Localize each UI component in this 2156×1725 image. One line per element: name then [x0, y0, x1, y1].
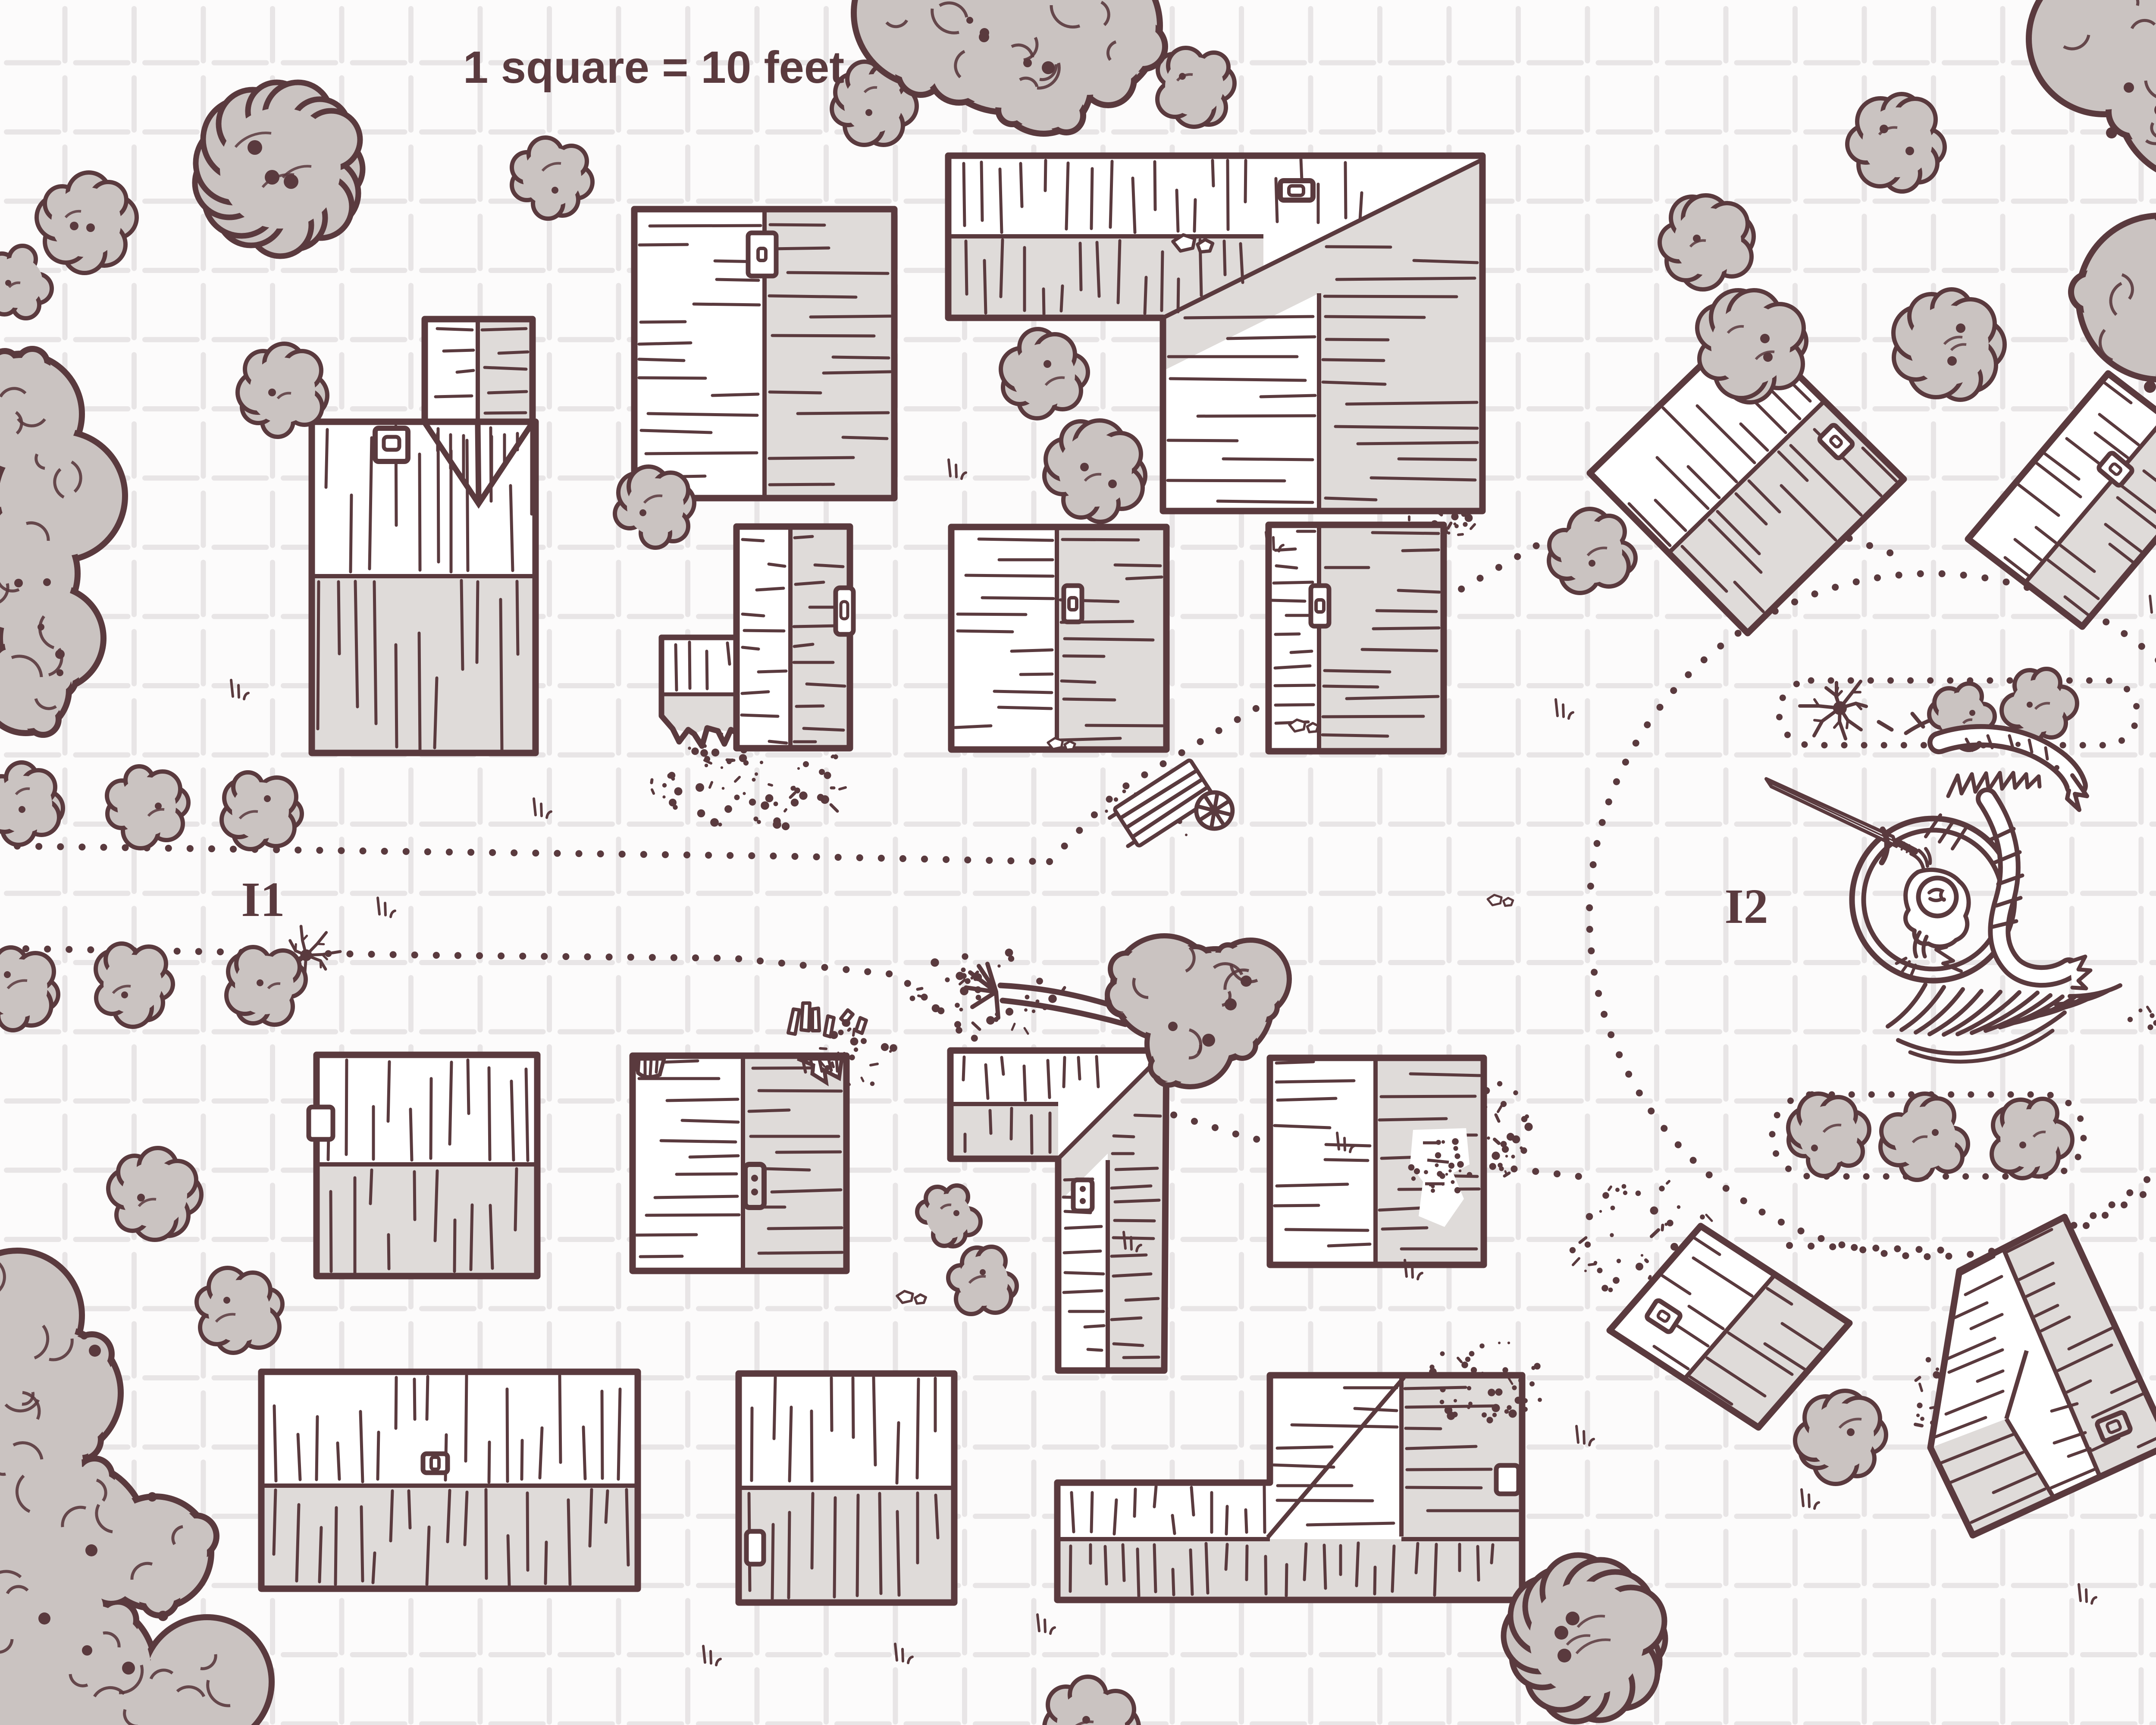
- svg-text:I1: I1: [241, 872, 285, 927]
- svg-text:I2: I2: [1724, 879, 1768, 934]
- svg-text:1 square = 10 feet: 1 square = 10 feet: [463, 42, 844, 93]
